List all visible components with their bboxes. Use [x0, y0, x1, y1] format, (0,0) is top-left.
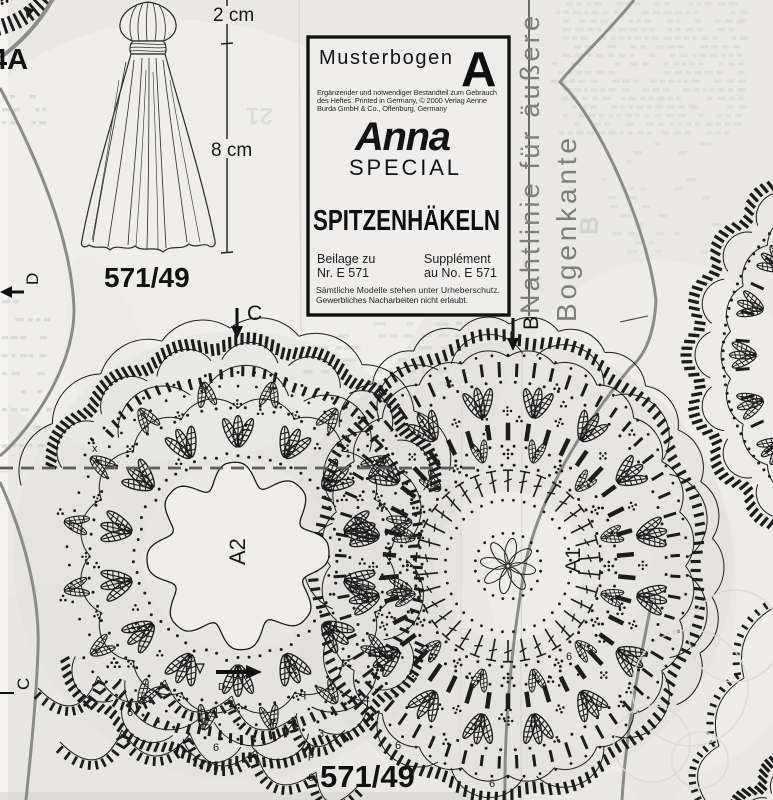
svg-text:A1: A1: [562, 547, 585, 573]
svg-text:D: D: [218, 682, 225, 693]
svg-text:C: C: [247, 302, 262, 325]
svg-text:x: x: [345, 432, 351, 444]
svg-text:3: 3: [318, 728, 324, 740]
svg-text:A2: A2: [225, 538, 250, 565]
svg-text:6: 6: [127, 707, 133, 719]
svg-text:C: C: [14, 678, 33, 690]
svg-text:Beilage zu: Beilage zu: [317, 252, 375, 266]
svg-text:6: 6: [566, 651, 572, 663]
svg-text:Nahtlinie für äußere: Nahtlinie für äußere: [515, 16, 545, 314]
svg-text:Musterbogen: Musterbogen: [319, 47, 452, 69]
svg-text:6: 6: [596, 702, 602, 714]
svg-text:Sämtliche Modelle stehen unter: Sämtliche Modelle stehen unter Urhebersc…: [316, 285, 500, 295]
svg-text:Nr. E 571: Nr. E 571: [317, 266, 369, 280]
svg-text:6: 6: [308, 772, 314, 784]
svg-text:x: x: [92, 443, 98, 455]
svg-text:571/49: 571/49: [320, 759, 415, 794]
svg-text:Gewerbliches Nacharbeiten nich: Gewerbliches Nacharbeiten nicht erlaubt.: [316, 295, 468, 305]
svg-text:6: 6: [213, 742, 219, 754]
svg-text:q: q: [300, 688, 306, 700]
svg-text:2 cm: 2 cm: [213, 5, 254, 26]
svg-text:au No. E 571: au No. E 571: [424, 266, 497, 280]
svg-text:8 cm: 8 cm: [211, 140, 252, 161]
svg-text:Supplément: Supplément: [424, 252, 491, 266]
svg-text:21: 21: [246, 102, 273, 129]
svg-text:Anna: Anna: [354, 115, 451, 159]
svg-text:6: 6: [489, 778, 495, 790]
svg-text:6: 6: [395, 740, 401, 752]
svg-text:SPITZENHÄKELN: SPITZENHÄKELN: [313, 204, 500, 237]
svg-text:Bogenkante: Bogenkante: [551, 138, 582, 322]
svg-text:D: D: [23, 273, 42, 285]
svg-text:p: p: [308, 749, 314, 761]
svg-text:571/49: 571/49: [104, 262, 190, 293]
svg-text:4A: 4A: [0, 44, 28, 76]
svg-text:x: x: [378, 387, 384, 399]
svg-text:Burda GmbH & Co., Offenburg, G: Burda GmbH & Co., Offenburg, Germany: [317, 104, 447, 113]
